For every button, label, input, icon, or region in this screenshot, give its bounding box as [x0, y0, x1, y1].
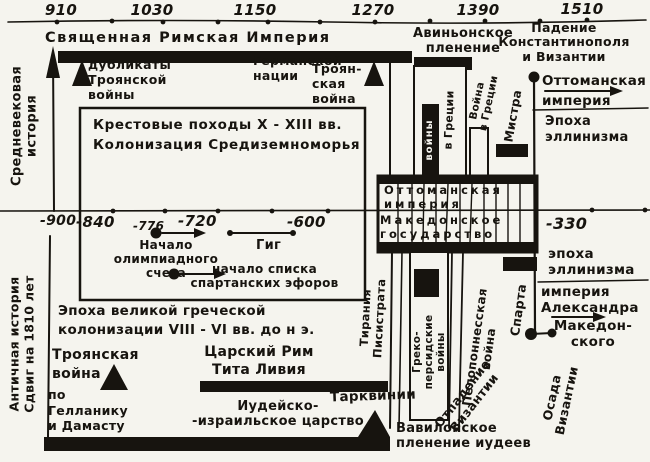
peisistratus-tyranny-label: Тирания Писистрата [357, 278, 389, 359]
greco-persian-cap [414, 269, 439, 297]
ottoman-empire-right-label: Оттоманская империя [542, 72, 646, 111]
triangle-marker [364, 61, 384, 86]
trojan-war-duplicates-label: дубликаты Троянской войны [88, 58, 171, 102]
top-axis-label: 1030 [131, 2, 174, 20]
top-axis-label: 1390 [457, 2, 500, 20]
war-in-greece-column [470, 128, 488, 177]
spartan-ephors-label: начало списка спартанских эфоров [182, 262, 347, 290]
mid-axis-line [0, 210, 650, 211]
sidebar-ancient-history-label: Античная история Сдвиг на 1810 лет [7, 275, 37, 412]
interval-dot [227, 230, 233, 236]
sparta-bar [503, 257, 537, 271]
constantinople-line [534, 79, 535, 332]
in-greece-label: в Греции [442, 90, 457, 150]
trojan-war-medieval-label: Троян- ская война [312, 62, 362, 106]
fall-of-constantinople-label: Падение Константинополя и Византии [478, 21, 650, 64]
top-axis-label: 1510 [561, 1, 604, 19]
hellenism-epoch-right-label: Эпоха эллинизма [545, 114, 629, 145]
mid-axis-label: -600 [287, 214, 326, 232]
top-axis-label: 910 [45, 2, 77, 20]
hellenism-epoch-lower-label: эпоха эллинизма [548, 247, 635, 278]
of-macedon-label: Македон- ского [538, 318, 648, 350]
mid-axis-label: -330 [546, 215, 587, 234]
regal-rome-label: Царский Рим Тита Ливия [180, 343, 338, 379]
gyges-label: Гиг [256, 238, 281, 253]
crusades-label: Крестовые походы X - XIII вв. Колонизаци… [93, 115, 360, 156]
greek-colonization-label: Эпоха великой греческой колонизации VIII… [58, 302, 315, 340]
chronology-diagram: 910 1030 1150 1270 1390 1510 -900 -840 -… [0, 0, 650, 462]
mid-axis-label: -776 [133, 219, 164, 233]
parallel-box-ottoman-label: Оттоманская империя [384, 184, 503, 212]
sidebar-medieval-history-label: Средневековая история [10, 66, 41, 186]
trojan-war-ancient-label: Троянская война [52, 346, 139, 384]
mid-axis-label: -840 [76, 214, 115, 232]
mistra-bar [496, 144, 528, 157]
wars-bar-label: войны [424, 119, 436, 160]
up-arrow-head [46, 46, 60, 78]
judean-kingdom-label: Иудейско- -израильское царство [186, 399, 370, 430]
greco-persian-wars-label: Греко- персидские войны [411, 315, 447, 390]
wars-in-greece-column [414, 66, 466, 177]
holy-roman-empire-label: Священная Римская Империя [45, 30, 331, 47]
mid-axis-label: -720 [178, 213, 217, 231]
hellanicus-damastes-label: по Гелланику и Дамасту [48, 387, 128, 434]
mid-axis-label: -900 [40, 213, 76, 230]
parallel-box-macedonian-label: Македонское государство [380, 214, 503, 242]
parallel-box-bottom-bar [378, 242, 537, 252]
judean-kingdom-bar [44, 437, 390, 451]
top-axis-label: 1150 [234, 2, 277, 20]
alexander-empire-label: империя Александра [541, 284, 639, 316]
separator-line [538, 280, 648, 282]
top-axis-label: 1270 [352, 2, 395, 20]
